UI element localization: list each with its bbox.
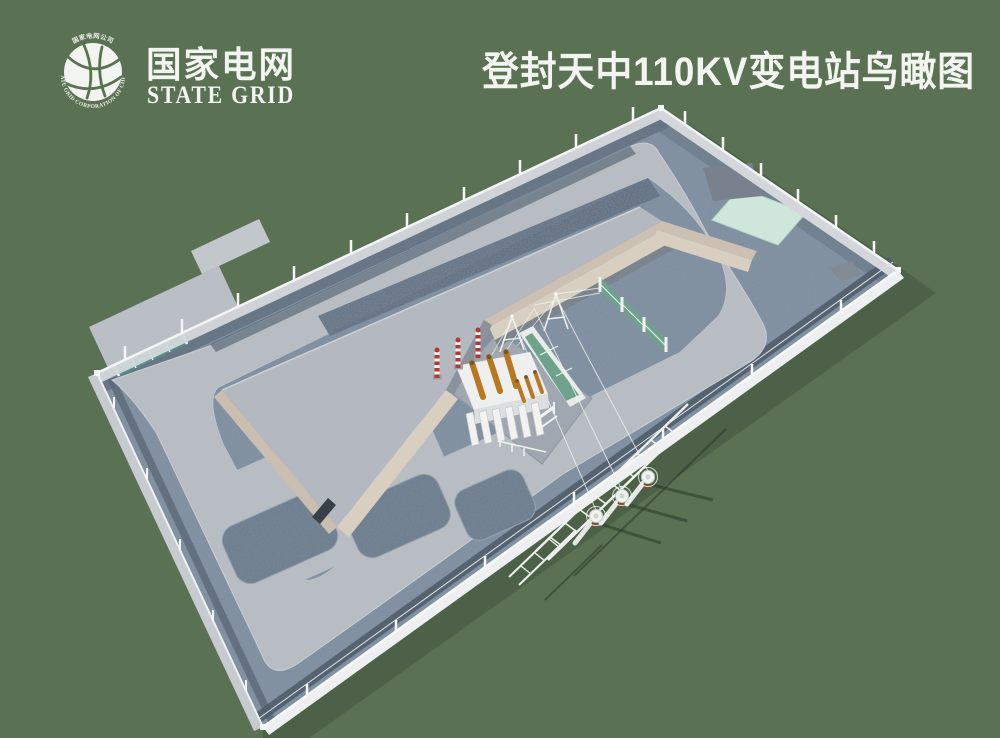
logo-name-en: STATE GRID bbox=[147, 82, 295, 109]
page-title: 登封天中110KV变电站鸟瞰图 bbox=[481, 50, 975, 94]
slide: 国家电网公司 STATE GRID CORPORATION OF CHINA 国… bbox=[0, 0, 1000, 738]
logo-name-cn: 国家电网 bbox=[146, 44, 296, 85]
substation-render: 国家电网公司 STATE GRID CORPORATION OF CHINA 国… bbox=[0, 0, 1000, 738]
